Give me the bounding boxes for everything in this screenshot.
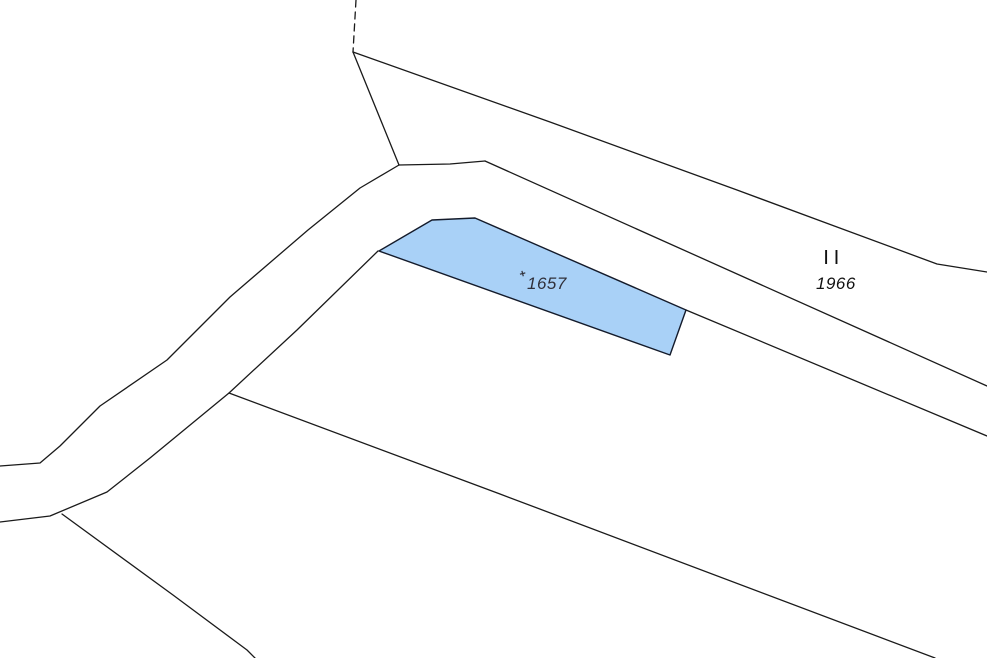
parcel-number-1966: 1966 — [816, 274, 856, 293]
cadastral-map: + 1657 | | 1966 — [0, 0, 987, 658]
cadastral-map-canvas[interactable]: + 1657 | | 1966 — [0, 0, 987, 658]
parcel-number-1657: 1657 — [527, 274, 567, 293]
land-use-symbol-icon: | | — [824, 248, 840, 265]
map-background — [0, 0, 987, 658]
